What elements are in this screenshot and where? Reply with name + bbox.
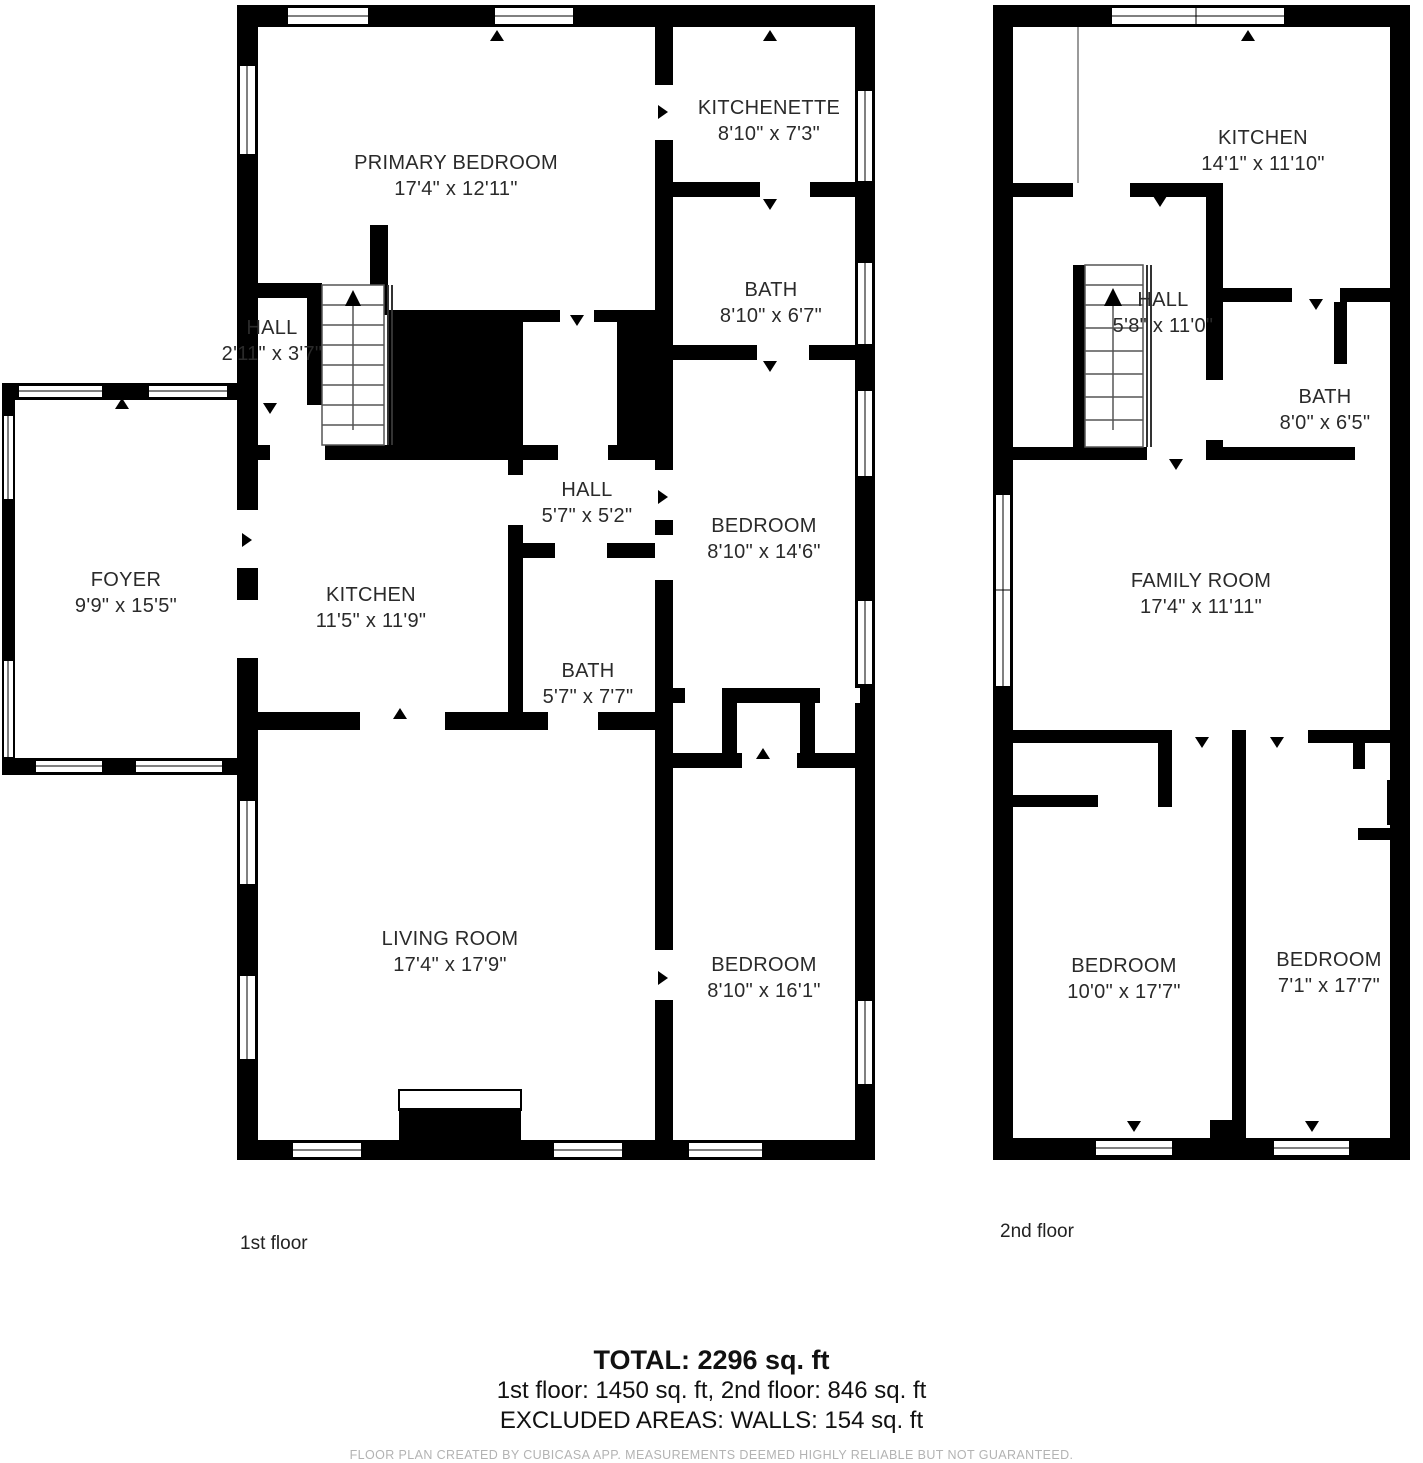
room-label-bedroom-right-2f: BEDROOM 7'1" x 17'7" bbox=[1276, 947, 1381, 999]
room-name: FAMILY ROOM bbox=[1131, 568, 1271, 594]
room-label-kitchen-2f: KITCHEN 14'1" x 11'10" bbox=[1201, 125, 1325, 177]
room-label-bath-2f: BATH 8'0" x 6'5" bbox=[1280, 384, 1371, 436]
room-label-bedroom-left-2f: BEDROOM 10'0" x 17'7" bbox=[1067, 953, 1181, 1005]
room-dimensions: 14'1" x 11'10" bbox=[1201, 151, 1325, 177]
room-dimensions: 5'8" x 11'0" bbox=[1113, 313, 1214, 339]
floor-plan-page: PRIMARY BEDROOM 17'4" x 12'11" KITCHENET… bbox=[0, 0, 1423, 1463]
room-name: BATH bbox=[1280, 384, 1371, 410]
floor-areas-text: 1st floor: 1450 sq. ft, 2nd floor: 846 s… bbox=[0, 1376, 1423, 1406]
area-summary: TOTAL: 2296 sq. ft 1st floor: 1450 sq. f… bbox=[0, 1344, 1423, 1436]
excluded-areas-text: EXCLUDED AREAS: WALLS: 154 sq. ft bbox=[0, 1406, 1423, 1436]
second-floor-labels: KITCHEN 14'1" x 11'10" HALL 5'8" x 11'0"… bbox=[0, 0, 1423, 1463]
second-floor-caption: 2nd floor bbox=[1000, 1221, 1074, 1243]
room-dimensions: 8'0" x 6'5" bbox=[1280, 410, 1371, 436]
room-label-hall-2f: HALL 5'8" x 11'0" bbox=[1113, 287, 1214, 339]
room-name: BEDROOM bbox=[1067, 953, 1181, 979]
room-dimensions: 7'1" x 17'7" bbox=[1276, 973, 1381, 999]
room-name: BEDROOM bbox=[1276, 947, 1381, 973]
room-dimensions: 10'0" x 17'7" bbox=[1067, 979, 1181, 1005]
room-label-family-room: FAMILY ROOM 17'4" x 11'11" bbox=[1131, 568, 1271, 620]
room-name: KITCHEN bbox=[1201, 125, 1325, 151]
disclaimer-text: FLOOR PLAN CREATED BY CUBICASA APP. MEAS… bbox=[0, 1448, 1423, 1462]
total-area-text: TOTAL: 2296 sq. ft bbox=[0, 1344, 1423, 1376]
room-dimensions: 17'4" x 11'11" bbox=[1131, 594, 1271, 620]
room-name: HALL bbox=[1113, 287, 1214, 313]
